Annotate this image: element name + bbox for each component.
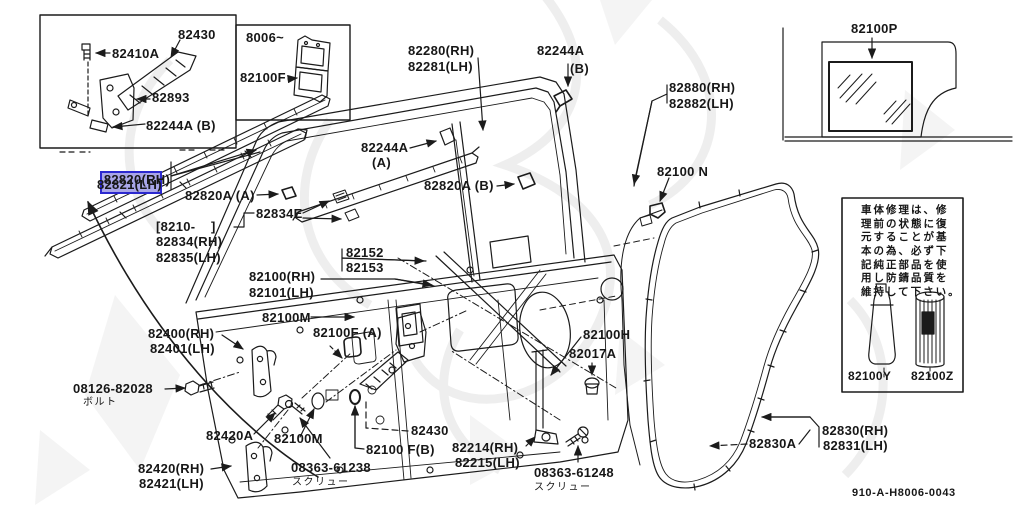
part-label-82215-lh: 82215(LH) bbox=[455, 456, 520, 470]
part-label-82281-lh: 82281(LH) bbox=[408, 60, 473, 74]
date-range-label-8006: 8006~ bbox=[246, 31, 284, 45]
part-label-08363-61238: 08363-61238 bbox=[291, 461, 371, 475]
part-label-82244a-top-sub: (B) bbox=[570, 62, 589, 76]
part-label-82835-lh: 82835(LH) bbox=[156, 251, 221, 265]
part-label-82820a-a: 82820A (A) bbox=[185, 189, 255, 203]
part-label-82821-lh: 82821(LH) bbox=[97, 178, 162, 192]
part-label-82430-inset: 82430 bbox=[178, 28, 216, 42]
part-label-82100m-mid: 82100M bbox=[262, 311, 311, 325]
part-label-82244a-left-sub: (A) bbox=[372, 156, 391, 170]
caption-bolt-jp: ボルト bbox=[83, 398, 118, 409]
part-label-82830a: 82830A bbox=[749, 437, 796, 451]
part-label-82882-lh: 82882(LH) bbox=[669, 97, 734, 111]
part-label-82880-rh: 82880(RH) bbox=[669, 81, 735, 95]
part-label-82893: 82893 bbox=[152, 91, 190, 105]
part-label-82430-bottom: 82430 bbox=[411, 424, 449, 438]
part-label-82101-lh: 82101(LH) bbox=[249, 286, 314, 300]
part-label-82400-rh: 82400(RH) bbox=[148, 327, 214, 341]
part-label-82100n: 82100 N bbox=[657, 165, 708, 179]
part-label-82100m-bottom: 82100M bbox=[274, 432, 323, 446]
part-label-82244a-left: 82244A bbox=[361, 141, 408, 155]
part-label-82100f-a: 82100F (A) bbox=[313, 326, 382, 340]
repair-note-line: 理前の状態に復 bbox=[861, 218, 961, 232]
part-label-82100p: 82100P bbox=[851, 22, 898, 36]
part-label-82153: 82153 bbox=[346, 261, 384, 275]
part-label-08363-61248: 08363-61248 bbox=[534, 466, 614, 480]
part-label-82100y: 82100Y bbox=[848, 370, 891, 383]
part-label-82100z: 82100Z bbox=[911, 370, 954, 383]
repair-note-line: 用し防錆品質を bbox=[861, 272, 961, 286]
part-label-82214-rh: 82214(RH) bbox=[452, 441, 518, 455]
date-range-label-8210: [8210- ] bbox=[156, 220, 216, 234]
part-label-08126-82028: 08126-82028 bbox=[73, 382, 153, 396]
part-label-82834e: 82834E bbox=[256, 207, 303, 221]
repair-note-line: 車体修理は、修 bbox=[861, 204, 961, 218]
part-label-82100f-inset: 82100F bbox=[240, 71, 286, 85]
part-label-82420a: 82420A bbox=[206, 429, 253, 443]
part-label-82820a-b: 82820A (B) bbox=[424, 179, 494, 193]
part-label-82244a-b-inset: 82244A (B) bbox=[146, 119, 216, 133]
drawing-number: 910-A-H8006-0043 bbox=[852, 488, 956, 500]
part-label-82421-lh: 82421(LH) bbox=[139, 477, 204, 491]
glass-inset-box bbox=[783, 28, 1012, 141]
repair-note-line: 本の為、必ず下 bbox=[861, 245, 961, 259]
caption-screw1-jp: スクリュー bbox=[292, 478, 350, 489]
part-label-82100f-b: 82100 F(B) bbox=[366, 443, 435, 457]
repair-note: 車体修理は、修 理前の状態に復 元することが基 本の為、必ず下 記純正部品を使 … bbox=[861, 204, 961, 299]
repair-note-line: 維持して下さい。 bbox=[861, 286, 961, 300]
part-label-82280-rh: 82280(RH) bbox=[408, 44, 474, 58]
repair-note-line: 元することが基 bbox=[861, 231, 961, 245]
part-label-82100h: 82100H bbox=[583, 328, 630, 342]
part-label-82244a-top: 82244A bbox=[537, 44, 584, 58]
part-label-82830-rh: 82830(RH) bbox=[822, 424, 888, 438]
part-label-82100-rh: 82100(RH) bbox=[249, 270, 315, 284]
part-label-82410a: 82410A bbox=[112, 47, 159, 61]
part-label-82152: 82152 bbox=[346, 246, 384, 260]
part-label-82420-rh: 82420(RH) bbox=[138, 462, 204, 476]
part-label-82401-lh: 82401(LH) bbox=[150, 342, 215, 356]
part-label-82017a: 82017A bbox=[569, 347, 616, 361]
part-label-82834-rh: 82834(RH) bbox=[156, 235, 222, 249]
caption-screw2-jp: スクリュー bbox=[534, 483, 592, 494]
part-label-82831-lh: 82831(LH) bbox=[823, 439, 888, 453]
parts-diagram-page: 82430 82410A 82893 82244A (B) 8006~ 8210… bbox=[0, 0, 1024, 506]
repair-note-line: 記純正部品を使 bbox=[861, 259, 961, 273]
